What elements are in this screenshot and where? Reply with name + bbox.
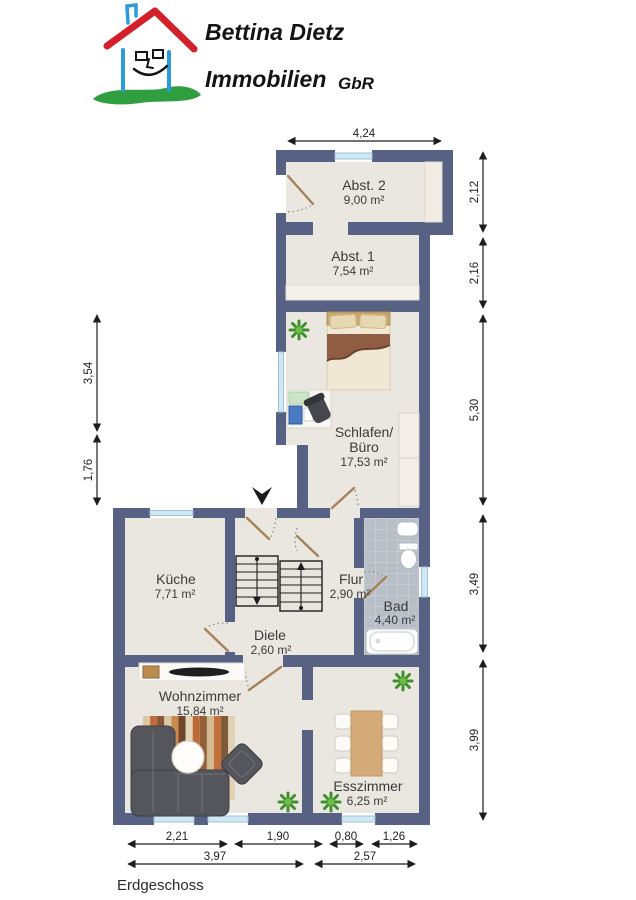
plant-schlafen (290, 321, 308, 339)
svg-text:2,12: 2,12 (469, 181, 481, 203)
plant-esszimmer-1 (394, 672, 412, 690)
svg-text:3,99: 3,99 (469, 729, 481, 751)
label-abst1-name: Abst. 1 (331, 248, 375, 264)
svg-text:2,57: 2,57 (354, 851, 376, 863)
label-kueche-area: 7,71 m² (155, 587, 196, 601)
label-abst2-area: 9,00 m² (344, 193, 385, 207)
wardrobe-schlafen-2 (399, 458, 419, 506)
wardrobe-schlafen-1 (399, 413, 419, 458)
desk-monitor (289, 406, 302, 424)
svg-text:1,76: 1,76 (83, 459, 95, 481)
label-schlafen-name2: Büro (349, 439, 379, 455)
opening-abst2-exterior-door (276, 175, 286, 213)
window-abst2-top (335, 150, 372, 162)
opening-entrance (245, 508, 277, 518)
label-schlafen-area: 17,53 m² (340, 455, 387, 469)
label-bad-area: 4,40 m² (375, 613, 416, 627)
opening-abst2-abst1 (313, 222, 348, 235)
logo-eye-left (136, 52, 147, 60)
coffee-table (172, 741, 204, 773)
bad-toilet (399, 543, 418, 569)
bed (327, 312, 390, 390)
dimension-bottom-row1: 2,21 1,90 0,80 1,26 (128, 831, 417, 844)
entrance-arrow-icon (252, 487, 272, 505)
tv-screen (169, 668, 229, 677)
label-bad-name: Bad (384, 598, 409, 614)
logo-house-icon (93, 5, 201, 104)
floorplan-page: Bettina Dietz Immobilien GbR (0, 0, 636, 900)
svg-text:1,26: 1,26 (383, 831, 405, 843)
dimension-right-column: 2,12 2,16 5,30 3,49 3,99 (469, 152, 483, 820)
label-kueche-name: Küche (156, 571, 196, 587)
svg-text:3,54: 3,54 (83, 361, 95, 384)
dimension-bottom-row2: 3,97 2,57 (128, 851, 415, 864)
svg-text:2,21: 2,21 (166, 831, 188, 843)
dining-table (351, 711, 382, 776)
svg-text:0,80: 0,80 (335, 831, 357, 843)
dimension-left-column: 3,54 1,76 (83, 315, 97, 505)
dimension-top: 4,24 (288, 128, 441, 141)
label-abst2-name: Abst. 2 (342, 177, 386, 193)
svg-text:3,49: 3,49 (469, 573, 481, 595)
svg-text:3,97: 3,97 (204, 851, 226, 863)
exterior-notch (276, 445, 297, 508)
bad-sink (397, 522, 418, 536)
label-flur-name: Flur (339, 571, 363, 587)
svg-text:5,30: 5,30 (469, 399, 481, 421)
brand-name-suffix: GbR (338, 74, 375, 93)
label-flur-area: 2,90 m² (330, 587, 371, 601)
brand-name-line2: Immobilien (205, 66, 326, 92)
label-esszimmer-name: Esszimmer (333, 778, 403, 794)
shelf-abst2 (425, 162, 442, 222)
opening-esszimmer (302, 700, 313, 730)
opening-kueche-door (225, 622, 235, 652)
label-abst1-area: 7,54 m² (333, 264, 374, 278)
label-wohnzimmer-area: 15,84 m² (176, 704, 223, 718)
svg-text:2,16: 2,16 (469, 262, 481, 284)
window-esszimmer-bottom (342, 813, 375, 825)
bad-bathtub (366, 629, 418, 654)
logo-nose (147, 59, 153, 68)
label-schlafen-name1: Schlafen/ (335, 424, 393, 440)
label-diele-name: Diele (254, 627, 286, 643)
brand-name-line1: Bettina Dietz (205, 19, 345, 45)
shelf-abst1 (286, 285, 419, 300)
window-bad-right (419, 567, 430, 597)
opening-schlafen-door (330, 508, 360, 518)
window-kueche-top (150, 508, 193, 518)
svg-text:4,24: 4,24 (353, 128, 376, 140)
plant-esszimmer-2 (322, 793, 340, 811)
label-esszimmer-area: 6,25 m² (347, 794, 388, 808)
stair-flight-down (236, 556, 278, 606)
floor-title: Erdgeschoss (117, 877, 204, 894)
logo-chimney (127, 5, 136, 23)
desk-workstation (287, 390, 334, 428)
deco-books (143, 666, 159, 678)
logo-grass (93, 86, 201, 104)
label-diele-area: 2,60 m² (251, 643, 292, 657)
window-schlafen-left (276, 352, 286, 412)
logo-eye-right (153, 50, 163, 58)
svg-text:1,90: 1,90 (267, 831, 289, 843)
logo-roof (107, 11, 194, 49)
tv-console (139, 663, 245, 681)
logo: Bettina Dietz Immobilien GbR (93, 5, 375, 104)
stair-flight-up (280, 561, 322, 611)
plant-wohnzimmer (279, 793, 297, 811)
floorplan-image: Bettina Dietz Immobilien GbR (0, 0, 636, 900)
label-wohnzimmer-name: Wohnzimmer (159, 688, 242, 704)
